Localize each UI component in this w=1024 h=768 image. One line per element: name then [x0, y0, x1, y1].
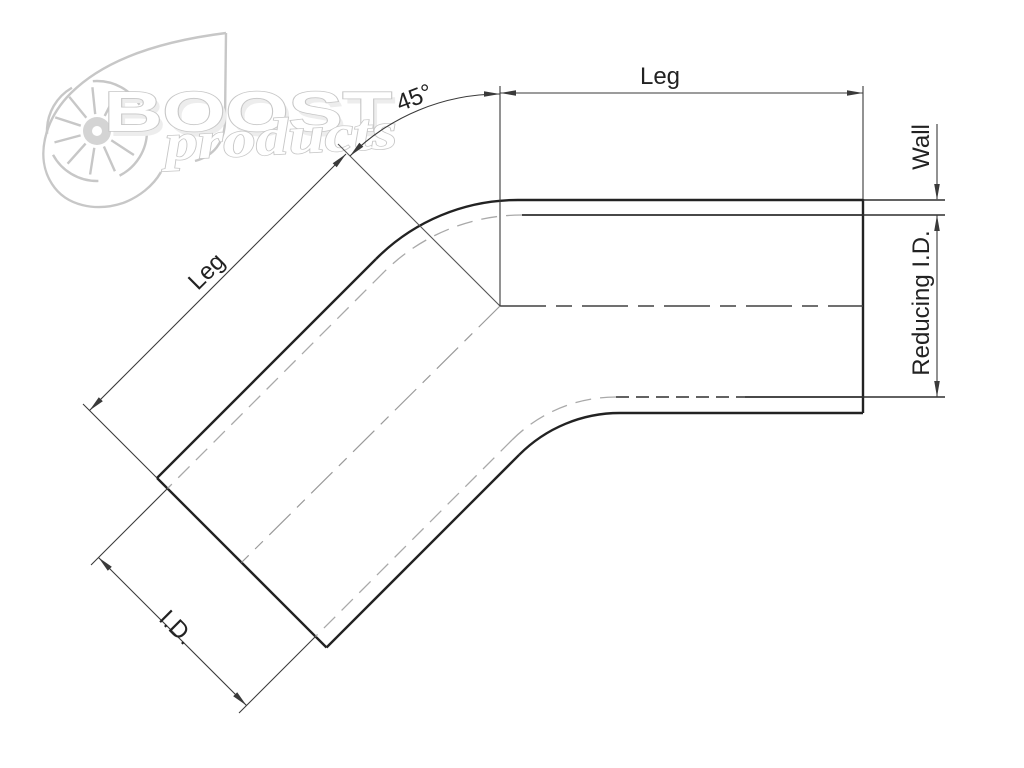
- angle-arrowhead-top: [484, 91, 500, 96]
- end-face-extension-line: [83, 404, 157, 478]
- elbow-dimension-drawing: BOOST BOOST products Leg: [0, 0, 1024, 768]
- leg-top-label: Leg: [640, 63, 680, 90]
- arrowhead-left: [500, 90, 516, 95]
- watermark-subtitle: products: [159, 103, 399, 172]
- leg-diagonal-label: Leg: [183, 248, 230, 295]
- diagonal-centerline: [242, 306, 501, 563]
- angle-label: 45°: [393, 79, 437, 117]
- pipe-diagonal-lower-edge: [327, 455, 520, 648]
- pipe-inner-top-bend: [384, 215, 522, 272]
- dimension-wall: Wall: [863, 124, 945, 215]
- turbine-hub-center: [92, 126, 102, 136]
- leg-diagonal-dimension-line: [90, 154, 347, 411]
- id-extension-line-upper: [91, 489, 168, 566]
- id-label: I.D.: [154, 605, 199, 650]
- reducing-id-arrowhead-bottom: [934, 381, 940, 397]
- reducing-id-arrowhead-top: [934, 215, 940, 231]
- pipe-outline: [157, 199, 863, 648]
- reducing-id-label: Reducing I.D.: [908, 230, 935, 375]
- pipe-outer-bottom-bend: [519, 413, 620, 455]
- dimension-leg-top: Leg: [500, 63, 863, 306]
- pipe-inner-diagonal-upper-wall: [168, 272, 385, 489]
- dimension-reducing-id: Reducing I.D.: [863, 215, 945, 397]
- centerline-extension-ray: [338, 144, 500, 306]
- arrowhead-right: [847, 90, 863, 95]
- pipe-inner-diagonal-lower-wall: [316, 440, 513, 637]
- pipe-diagonal-upper-edge: [157, 259, 376, 478]
- centerlines: [242, 144, 864, 563]
- id-extension-line-lower: [239, 637, 316, 714]
- pipe-inner-bottom-bend: [512, 397, 616, 440]
- wall-label: Wall: [908, 124, 935, 170]
- watermark: BOOST BOOST products: [43, 33, 398, 207]
- technical-drawing-page: BOOST BOOST products Leg: [0, 0, 1024, 768]
- wall-arrowhead: [934, 184, 940, 200]
